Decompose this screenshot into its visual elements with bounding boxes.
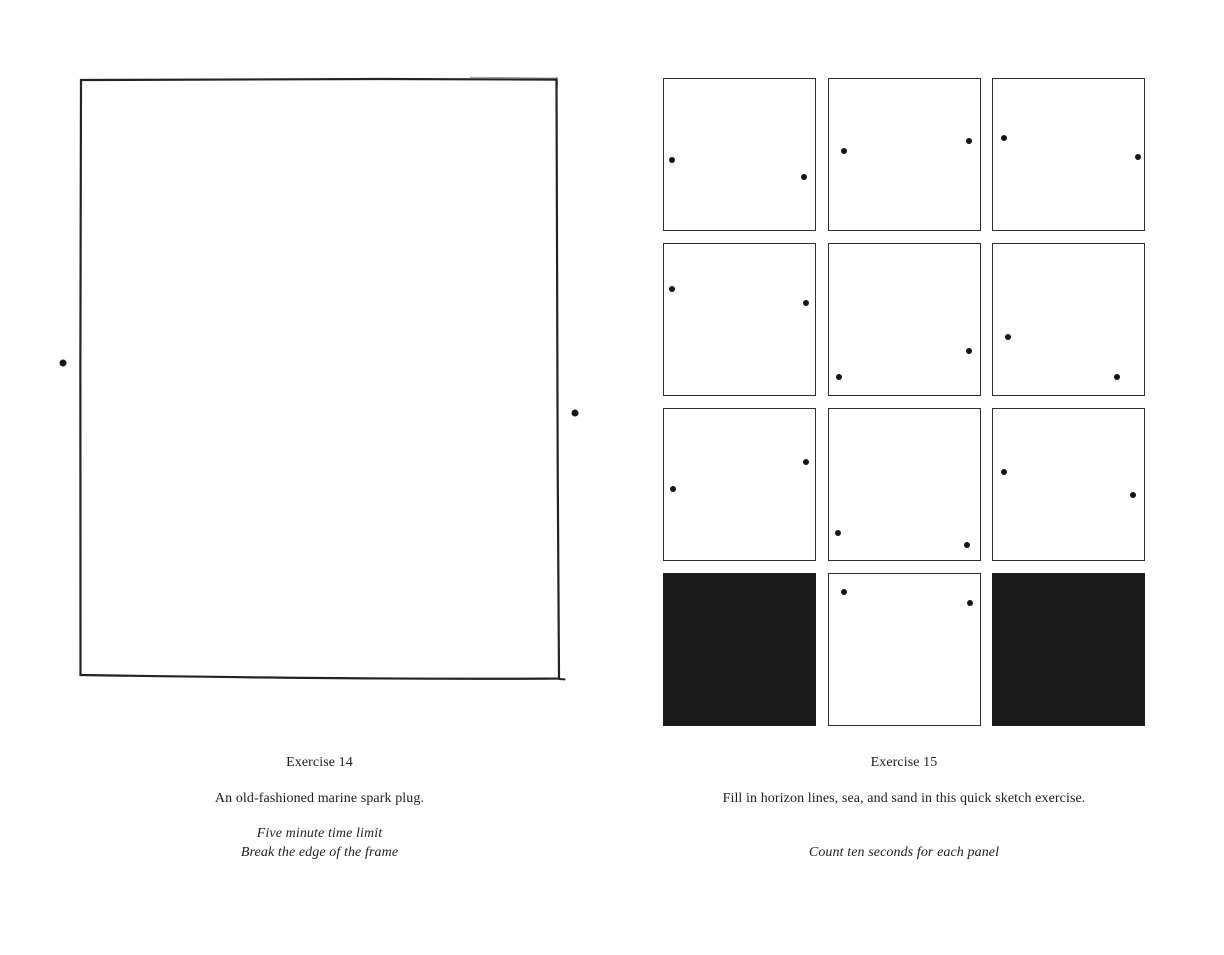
exercise-note-line: Five minute time limit (80, 824, 559, 843)
reference-dot (1135, 154, 1141, 160)
filled-sketch-panel (663, 573, 816, 726)
sketch-panel (663, 78, 816, 231)
reference-dot (966, 138, 972, 144)
reference-dot (967, 600, 973, 606)
sketch-panel (992, 243, 1145, 396)
exercise-14-caption: Exercise 14 An old-fashioned marine spar… (80, 753, 559, 862)
exercise-14-title: Exercise 14 (80, 753, 559, 772)
exercise-15-caption: Exercise 15 Fill in horizon lines, sea, … (663, 753, 1145, 862)
sketch-panel (828, 243, 981, 396)
frame-sketch-doubling-stroke (470, 77, 556, 78)
reference-dot (1001, 135, 1007, 141)
frame-outline (80, 79, 559, 679)
reference-dot (803, 300, 809, 306)
exercise-note-line: Count ten seconds for each panel (663, 843, 1145, 862)
exercise-14-notes: Five minute time limitBreak the edge of … (80, 824, 559, 862)
reference-dot (1001, 469, 1007, 475)
frame-corner-tick-stroke (557, 77, 558, 85)
exercise-15-notes: Count ten seconds for each panel (663, 824, 1145, 862)
reference-dot (1130, 492, 1136, 498)
sketch-panel (663, 243, 816, 396)
reference-dot (966, 348, 972, 354)
reference-dot (841, 589, 847, 595)
reference-dot (964, 542, 970, 548)
exercise-15-title: Exercise 15 (663, 753, 1145, 772)
book-page: Exercise 14 An old-fashioned marine spar… (0, 0, 1224, 955)
sketch-panel-grid (663, 78, 1145, 726)
reference-dot (669, 157, 675, 163)
exercise-15-description: Fill in horizon lines, sea, and sand in … (663, 789, 1145, 808)
reference-dot (669, 286, 675, 292)
reference-dot (670, 486, 676, 492)
sketch-panel (992, 78, 1145, 231)
reference-dot (841, 148, 847, 154)
sketch-panel (663, 408, 816, 561)
sketch-panel (992, 408, 1145, 561)
exercise-note-line: Break the edge of the frame (80, 843, 559, 862)
sketch-panel (828, 78, 981, 231)
reference-dot (1005, 334, 1011, 340)
reference-dot (801, 174, 807, 180)
reference-dot (803, 459, 809, 465)
sketch-panel (828, 573, 981, 726)
reference-dot (1114, 374, 1120, 380)
sketch-panel (828, 408, 981, 561)
exercise-14-description: An old-fashioned marine spark plug. (80, 789, 559, 808)
reference-dot (60, 360, 67, 367)
reference-dot (572, 410, 579, 417)
reference-dot (835, 530, 841, 536)
filled-sketch-panel (992, 573, 1145, 726)
reference-dot (836, 374, 842, 380)
